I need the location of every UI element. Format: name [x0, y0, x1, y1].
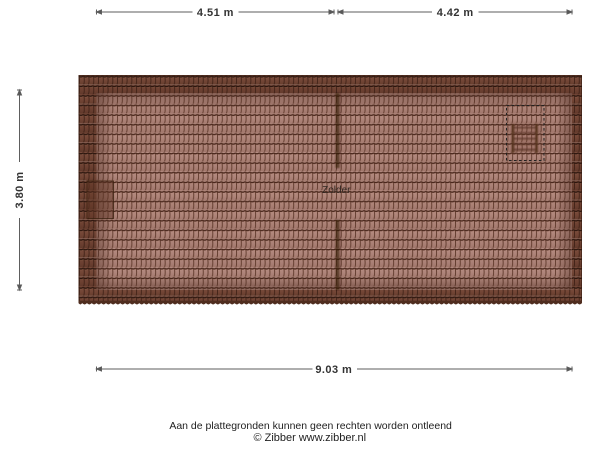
svg-text:9.03 m: 9.03 m	[315, 364, 352, 376]
svg-text:4.42 m: 4.42 m	[437, 7, 474, 19]
svg-text:3.80 m: 3.80 m	[14, 172, 26, 209]
svg-text:Aan de plattegronden kunnen ge: Aan de plattegronden kunnen geen rechten…	[169, 420, 452, 432]
svg-text:© Zibber www.zibber.nl: © Zibber www.zibber.nl	[253, 432, 366, 444]
svg-text:Zolder: Zolder	[322, 185, 351, 196]
svg-text:4.51 m: 4.51 m	[197, 7, 234, 19]
